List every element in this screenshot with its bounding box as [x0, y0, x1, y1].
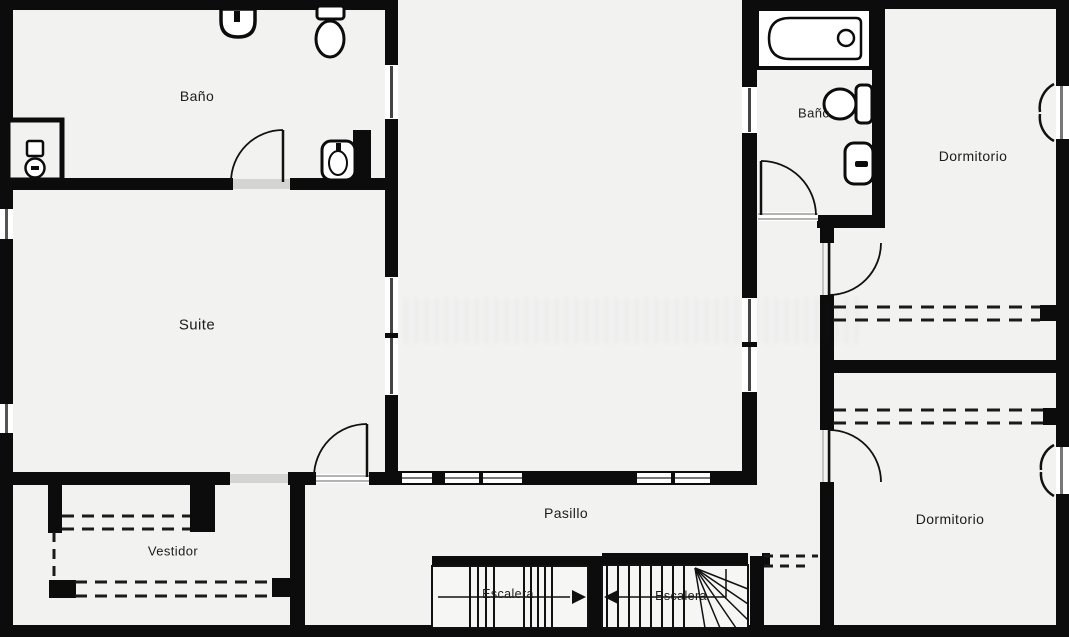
watermark — [405, 298, 865, 344]
window-left-wall-1 — [0, 205, 13, 243]
window-left-wall-2 — [0, 400, 13, 437]
room-label-bano-right: Baño — [798, 106, 830, 121]
room-label-dormitorio-bottom: Dormitorio — [916, 511, 985, 527]
window-pasillo-3 — [633, 473, 714, 483]
toilet-icon — [316, 6, 344, 57]
casement-window-dormitorio-bottom — [1041, 443, 1069, 498]
room-label-escalera-left: Escalera — [482, 587, 534, 601]
wardrobe-vestidor-bottom — [75, 582, 272, 596]
window-patio-left-1 — [385, 60, 398, 124]
small-basin-icon — [322, 141, 355, 180]
wardrobes-layer — [54, 307, 1043, 596]
toilet-icon — [824, 85, 872, 123]
wardrobe-dormitorio-bottom — [833, 410, 1043, 423]
bathtub-icon — [757, 9, 871, 68]
room-label-vestidor: Vestidor — [148, 544, 198, 559]
window-pasillo-1 — [398, 473, 436, 483]
bano-left-threshold — [233, 179, 290, 189]
door-suite — [314, 424, 367, 477]
small-basin-icon — [845, 143, 873, 184]
wardrobe-under-stairs — [764, 556, 818, 566]
door-dormitorio-top — [829, 243, 881, 295]
window-pasillo-2 — [441, 473, 526, 483]
casement-window-dormitorio-top — [1040, 82, 1069, 143]
washbasin-icon — [221, 9, 255, 37]
room-label-suite: Suite — [179, 317, 215, 334]
door-dormitorio-bottom — [829, 430, 881, 482]
room-label-dormitorio-top: Dormitorio — [939, 148, 1008, 164]
floor-plan: Baño Suite Vestidor Pasillo Escalera Esc… — [0, 0, 1069, 637]
door-bano-right — [761, 161, 816, 215]
suite-door-threshold — [316, 474, 369, 483]
windows-layer — [0, 60, 1069, 498]
room-label-escalera-right: Escalera — [655, 589, 707, 603]
shower-tray-icon — [8, 120, 62, 180]
window-patio-right-1 — [742, 82, 757, 138]
suite-vestidor-opening — [230, 474, 288, 483]
room-label-bano-left: Baño — [180, 88, 214, 104]
room-label-pasillo: Pasillo — [544, 505, 588, 521]
door-bano-left — [231, 130, 283, 182]
bano-right-threshold — [758, 212, 818, 221]
wardrobe-vestidor-top — [62, 516, 190, 529]
window-patio-left-2 — [385, 272, 398, 400]
